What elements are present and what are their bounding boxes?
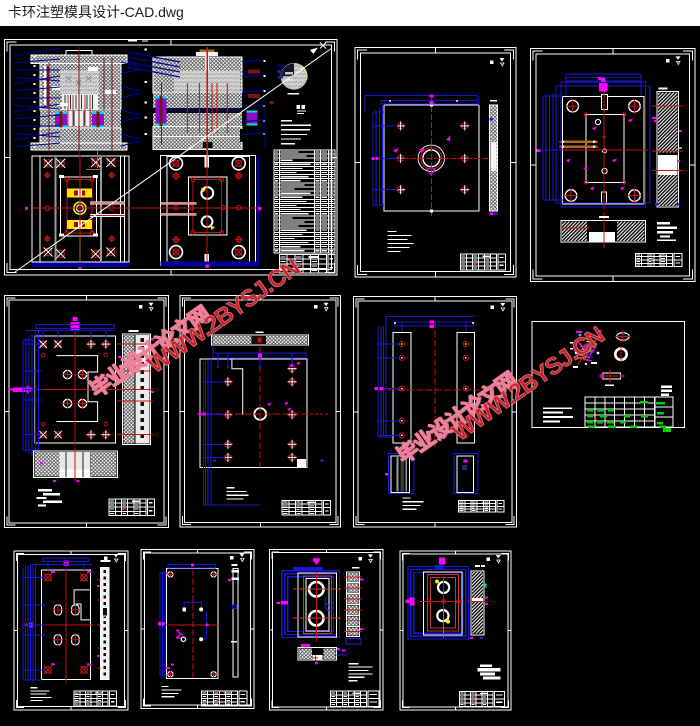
svg-text:WWW.2BYSJ.CN: WWW.2BYSJ.CN bbox=[143, 254, 305, 379]
